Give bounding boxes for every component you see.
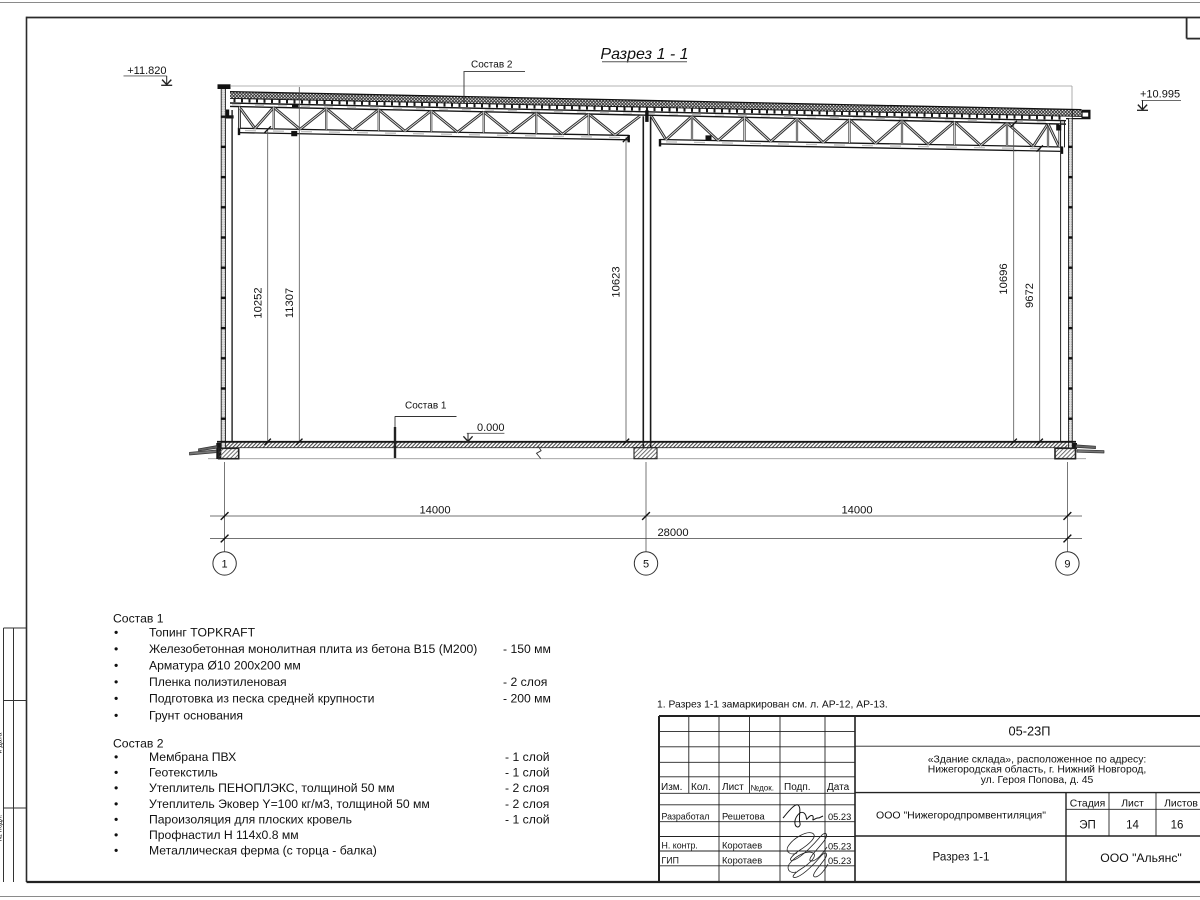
svg-text:Стадия: Стадия [1070, 798, 1105, 809]
svg-text:14: 14 [1126, 819, 1139, 831]
svg-text:•: • [114, 750, 118, 764]
svg-text:+11.820: +11.820 [127, 65, 166, 77]
svg-text:Профнастил H 114x0.8 мм: Профнастил H 114x0.8 мм [149, 828, 299, 842]
svg-text:ул. Героя Попова, д. 45: ул. Героя Попова, д. 45 [981, 775, 1094, 786]
svg-text:•: • [114, 708, 118, 722]
svg-text:- 1 слой: - 1 слой [505, 750, 550, 764]
svg-text:ГИП: ГИП [662, 856, 679, 866]
svg-text:Утеплитель Эковер Y=100 кг/м3,: Утеплитель Эковер Y=100 кг/м3, толщиной … [149, 797, 430, 811]
svg-text:Пароизоляция для плоских крове: Пароизоляция для плоских кровель [149, 812, 352, 826]
svg-text:и дата: и дата [0, 733, 4, 754]
svg-text:Коротаев: Коротаев [722, 841, 762, 851]
svg-text:1: 1 [222, 558, 228, 570]
svg-text:Разрез 1-1: Разрез 1-1 [933, 850, 990, 863]
svg-text:05.23: 05.23 [828, 856, 851, 866]
svg-text:Грунт основания: Грунт основания [149, 708, 243, 722]
svg-text:- 2 слоя: - 2 слоя [503, 675, 547, 689]
svg-text:Геотекстиль: Геотекстиль [149, 766, 218, 780]
svg-text:Состав 2: Состав 2 [113, 737, 164, 751]
svg-text:10252: 10252 [253, 287, 265, 318]
svg-text:Лист: Лист [1121, 798, 1144, 809]
svg-text:№ подл.: № подл. [0, 814, 4, 841]
svg-text:Нижегородская область, г. Нижн: Нижегородская область, г. Нижний Новгоро… [928, 764, 1147, 776]
svg-text:Изм.: Изм. [661, 782, 682, 793]
svg-text:Разрез 1 - 1: Разрез 1 - 1 [600, 46, 688, 63]
svg-text:•: • [114, 675, 118, 689]
svg-text:0.000: 0.000 [477, 422, 505, 434]
svg-text:•: • [114, 766, 118, 780]
svg-text:5: 5 [643, 558, 649, 570]
svg-text:- 2 слоя: - 2 слоя [505, 797, 549, 811]
svg-text:10696: 10696 [998, 263, 1010, 294]
svg-text:05.23: 05.23 [828, 812, 851, 822]
svg-text:- 200 мм: - 200 мм [503, 692, 551, 706]
svg-text:Подготовка из песка средней кр: Подготовка из песка средней крупности [149, 692, 374, 706]
svg-text:Состав 1: Состав 1 [113, 612, 164, 626]
svg-text:ЭП: ЭП [1079, 819, 1096, 831]
svg-text:•: • [114, 812, 118, 826]
svg-text:11307: 11307 [284, 288, 296, 318]
svg-text:•: • [114, 659, 118, 673]
svg-text:№док.: №док. [751, 783, 774, 792]
svg-text:Лист: Лист [722, 782, 744, 793]
svg-text:Разработал: Разработал [662, 811, 710, 821]
svg-text:1. Разрез 1-1 замаркирован см.: 1. Разрез 1-1 замаркирован см. л. АР-12,… [657, 700, 888, 711]
svg-text:Топинг TOPKRAFT: Топинг TOPKRAFT [149, 625, 256, 639]
svg-text:•: • [114, 797, 118, 811]
svg-text:Состав 2: Состав 2 [471, 59, 513, 70]
svg-text:Н. контр.: Н. контр. [662, 841, 698, 851]
svg-text:Кол.: Кол. [691, 782, 711, 793]
svg-text:Подп.: Подп. [784, 782, 811, 793]
svg-text:Пленка полиэтиленовая: Пленка полиэтиленовая [149, 675, 287, 689]
svg-text:ООО "Альянс": ООО "Альянс" [1100, 851, 1182, 865]
svg-text:9: 9 [1064, 558, 1070, 570]
svg-text:•: • [114, 844, 118, 858]
svg-text:Коротаев: Коротаев [722, 856, 762, 866]
svg-text:- 1 слой: - 1 слой [505, 812, 550, 826]
svg-text:Железобетонная монолитная плит: Железобетонная монолитная плита из бетон… [149, 642, 477, 656]
svg-text:Мембрана ПВХ: Мембрана ПВХ [149, 750, 236, 764]
svg-text:28000: 28000 [657, 527, 688, 539]
svg-text:•: • [114, 642, 118, 656]
svg-text:- 2 слоя: - 2 слоя [505, 781, 549, 795]
svg-text:05-23П: 05-23П [1009, 724, 1051, 739]
svg-text:ООО "Нижегородпромвентиляция": ООО "Нижегородпромвентиляция" [876, 809, 1046, 821]
svg-text:10623: 10623 [611, 266, 623, 297]
svg-text:Листов: Листов [1164, 798, 1198, 809]
svg-text:•: • [114, 625, 118, 639]
svg-text:Арматура Ø10 200x200 мм: Арматура Ø10 200x200 мм [149, 659, 301, 673]
svg-text:Дата: Дата [827, 782, 850, 793]
svg-text:Утеплитель ПЕНОПЛЭКС, толщиной: Утеплитель ПЕНОПЛЭКС, толщиной 50 мм [149, 781, 395, 795]
svg-text:05.23: 05.23 [828, 841, 851, 851]
svg-text:- 1 слой: - 1 слой [505, 766, 550, 780]
svg-text:- 150 мм: - 150 мм [503, 642, 551, 656]
svg-text:14000: 14000 [841, 505, 872, 517]
svg-text:•: • [114, 828, 118, 842]
svg-text:9672: 9672 [1024, 283, 1036, 308]
svg-text:Состав 1: Состав 1 [405, 401, 447, 412]
svg-text:14000: 14000 [419, 505, 450, 517]
svg-text:+10.995: +10.995 [1140, 89, 1180, 101]
svg-text:•: • [114, 781, 118, 795]
svg-text:•: • [114, 692, 118, 706]
svg-text:Металлическая ферма (с торца -: Металлическая ферма (с торца - балка) [149, 844, 377, 858]
svg-text:Решетова: Решетова [722, 811, 765, 821]
svg-text:16: 16 [1171, 819, 1184, 831]
